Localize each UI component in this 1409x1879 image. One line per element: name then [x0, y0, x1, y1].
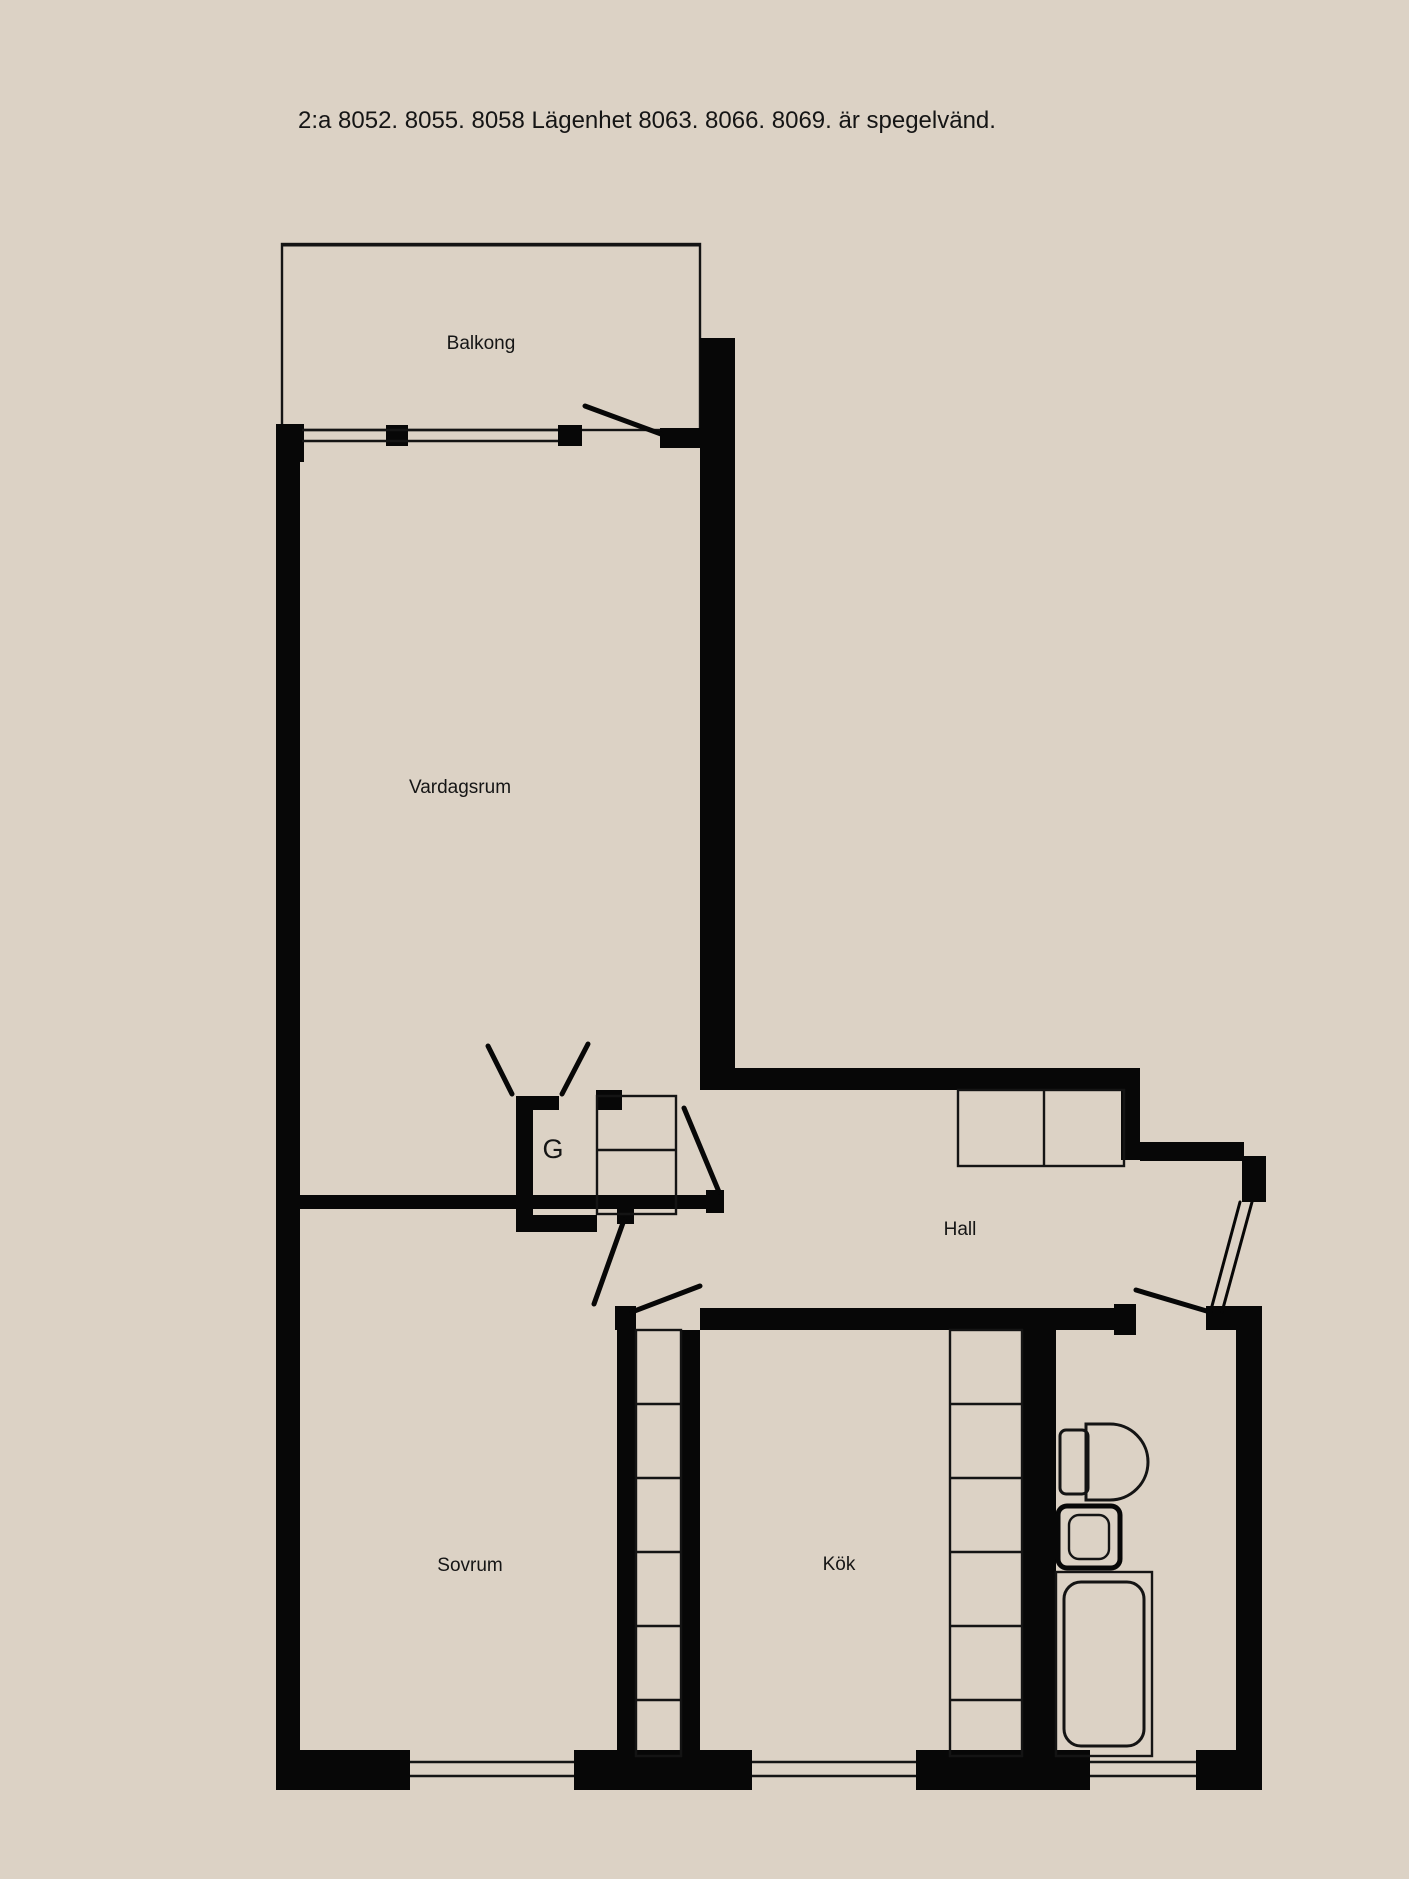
living-room-label: Vardagsrum [409, 777, 511, 798]
kitchen-door-leaf [632, 1286, 700, 1312]
floor-plan-page: 2:a 8052. 8055. 8058 Lägenhet 8063. 8066… [0, 0, 1409, 1879]
divider-wall-end-cap [706, 1190, 724, 1213]
kitchen-label: Kök [823, 1554, 856, 1575]
bedroom-wardrobe-left-wall [617, 1330, 636, 1756]
left-exterior-wall [276, 424, 300, 1790]
balcony-label: Balkong [447, 333, 516, 354]
hall-bottom-wall-cap [1114, 1304, 1136, 1335]
bedroom-wardrobe-cells [636, 1330, 681, 1756]
g-closet-bottom-wall [516, 1215, 597, 1232]
hall-bottom-wall [700, 1308, 1130, 1330]
hall-closets [958, 1090, 1124, 1166]
bathroom-door-leaf [1136, 1290, 1210, 1312]
right-exterior-wall [1236, 1306, 1262, 1790]
bathroom-left-wall [1022, 1330, 1056, 1756]
g-closet-door-leaf-left [488, 1046, 512, 1094]
bedroom-wardrobe-right-wall [681, 1330, 700, 1756]
living-room-right-wall [700, 338, 735, 1090]
living-bedroom-divider-wall [288, 1195, 724, 1209]
hall-top-wall [700, 1068, 1124, 1090]
balcony-wall-corner-block [276, 424, 304, 462]
floor-plan-drawing: 2:a 8052. 8055. 8058 Lägenhet 8063. 8066… [0, 0, 1409, 1879]
g-closet-label: G [542, 1134, 563, 1164]
g-closet-door-leaf-right [562, 1044, 588, 1094]
living-room-window [302, 430, 558, 441]
entry-door-hinge-block [1242, 1156, 1266, 1202]
bathroom-window [1090, 1762, 1196, 1776]
g-closet-left-wall [516, 1096, 533, 1232]
balcony-window-end-block [558, 425, 582, 446]
kitchen-wardrobe-cells [950, 1330, 1022, 1756]
bedroom-door-leaf [594, 1220, 624, 1304]
hall-label: Hall [944, 1219, 977, 1240]
kitchen-window [752, 1762, 916, 1776]
g-closet-top-nub [533, 1096, 559, 1110]
entry-top-wall [1140, 1142, 1244, 1161]
plan-title: 2:a 8052. 8055. 8058 Lägenhet 8063. 8066… [298, 107, 996, 134]
bathtub [1056, 1572, 1152, 1756]
bedroom-window [410, 1762, 574, 1776]
balcony-window-mullion [386, 425, 408, 446]
toilet [1060, 1424, 1148, 1500]
sink [1058, 1506, 1120, 1568]
living-room-door-leaf [684, 1108, 719, 1192]
kitchen-cabinet-top-nub [596, 1090, 622, 1110]
bottom-wall-corner-block [1196, 1750, 1262, 1790]
bottom-wall-left-block [276, 1750, 410, 1790]
bedroom-label: Sovrum [437, 1555, 502, 1576]
entry-door-leaf-inner [1212, 1202, 1240, 1306]
